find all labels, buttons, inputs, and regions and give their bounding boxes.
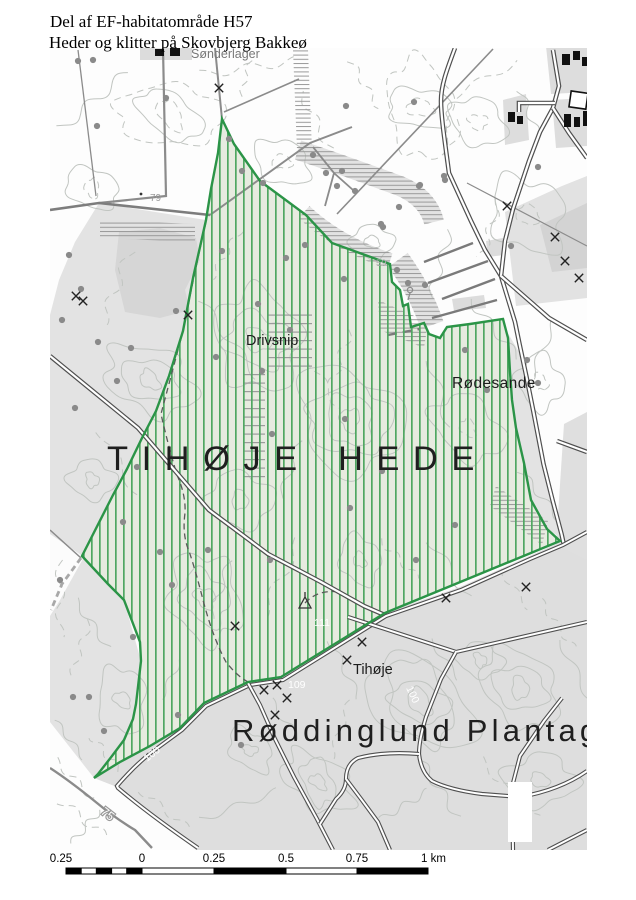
- svg-text:0.5: 0.5: [278, 853, 294, 865]
- svg-text:Heder og klitter på Skovbjerg: Heder og klitter på Skovbjerg Bakkeø: [49, 33, 307, 52]
- svg-text:59: 59: [376, 258, 387, 269]
- svg-text:0: 0: [139, 853, 145, 865]
- svg-text:TIHØJE: TIHØJE: [107, 440, 311, 478]
- svg-text:Tihøje: Tihøje: [353, 662, 393, 678]
- svg-text:Rødesande: Rødesande: [452, 375, 536, 392]
- svg-text:HEDE: HEDE: [338, 440, 488, 478]
- svg-text:109: 109: [288, 679, 306, 691]
- svg-text:1 km: 1 km: [421, 853, 446, 865]
- svg-text:79: 79: [150, 193, 162, 204]
- svg-text:Drivsnip: Drivsnip: [246, 333, 298, 349]
- svg-text:0.25: 0.25: [203, 853, 225, 865]
- svg-text:0.75: 0.75: [346, 853, 368, 865]
- svg-text:0.25: 0.25: [50, 853, 72, 865]
- svg-text:111: 111: [314, 617, 330, 629]
- svg-text:Røddinglund Plantag: Røddinglund Plantag: [232, 713, 601, 748]
- svg-text:Del af EF-habitatområde H57: Del af EF-habitatområde H57: [50, 12, 253, 31]
